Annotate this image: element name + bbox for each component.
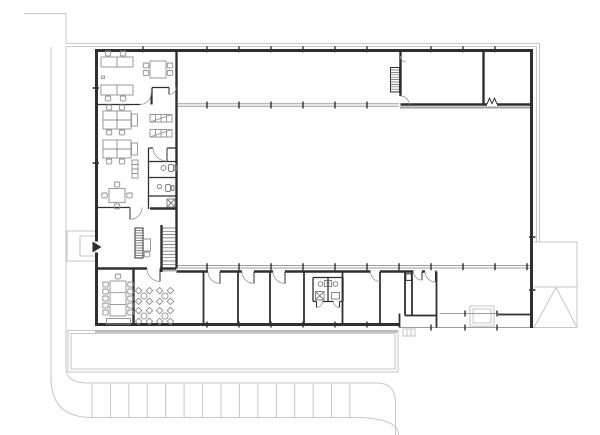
meeting-table — [143, 61, 172, 78]
desk-chairs — [105, 51, 125, 101]
site-boundary — [24, 14, 540, 418]
locker-unit — [135, 228, 143, 258]
shelving-unit — [150, 115, 172, 138]
small-meeting-table — [102, 182, 132, 209]
desk-cluster — [103, 105, 138, 135]
toilet-icon — [166, 185, 171, 192]
table-cluster — [156, 307, 173, 324]
road-curve-right — [360, 383, 399, 435]
ramp-triangle — [534, 288, 577, 328]
toilet-icon — [333, 282, 338, 287]
shaft-box — [406, 274, 412, 281]
table-cluster — [156, 287, 173, 304]
floor-plan-canvas — [0, 0, 600, 435]
conference-room — [103, 274, 133, 324]
top-right-rooms — [391, 51, 531, 105]
bottom-room-band — [177, 272, 437, 325]
stair-top-right — [391, 68, 400, 93]
reception-desk — [144, 239, 151, 257]
double-desk — [101, 57, 133, 95]
wc-block — [313, 278, 343, 308]
parking-stall-dividers — [92, 384, 350, 417]
sink-icon — [157, 184, 161, 188]
floor-plan-viewport — [0, 0, 600, 435]
wc-fixtures — [157, 165, 176, 208]
sink-icon — [161, 166, 166, 171]
toilet-icon — [318, 282, 323, 287]
sink-icon — [332, 293, 340, 300]
office-strip-walls — [95, 49, 177, 325]
table-cluster — [135, 287, 152, 304]
parking-lot — [88, 383, 399, 435]
hall-structure-lines — [176, 104, 534, 328]
conference-chairs — [103, 274, 133, 315]
entrance-porch — [67, 231, 95, 261]
break-room — [135, 287, 173, 324]
table-cluster — [135, 307, 152, 324]
main-entrance — [93, 242, 102, 253]
open-office-top — [101, 51, 173, 101]
entrance-hall — [135, 228, 176, 271]
terrace — [68, 331, 398, 373]
open-office-middle — [102, 105, 172, 209]
stair-main — [162, 228, 176, 271]
double-door-icon — [487, 98, 497, 104]
conference-table — [110, 281, 126, 316]
toilet-icon — [169, 165, 174, 172]
exterior-steps — [403, 329, 415, 336]
tall-cabinet — [132, 160, 138, 178]
